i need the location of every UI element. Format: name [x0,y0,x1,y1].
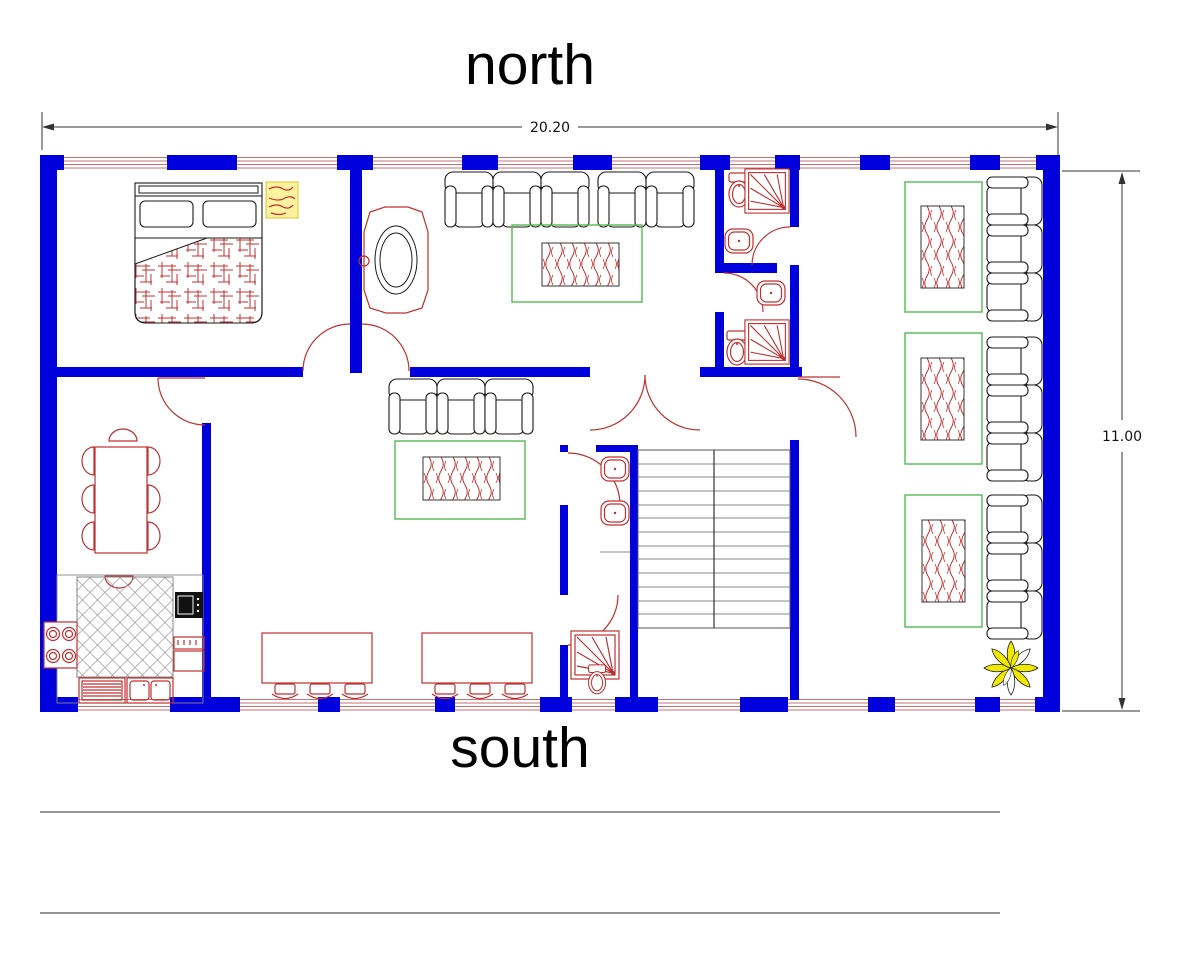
armchair [987,273,1042,321]
salon-table-3 [922,520,965,602]
side-table-oval [359,207,428,313]
dining-area [82,429,160,588]
oven [174,637,204,671]
salon-wall-c [790,440,799,700]
armchair [437,379,485,434]
bedroom-south-wall [57,367,303,377]
stair-west-wall [630,445,638,700]
dining-chair [148,522,160,550]
toilet [727,331,747,365]
kitchen [44,575,204,703]
dining-chair [148,447,160,475]
bedroom-door-arc [303,324,350,371]
dining-chair [82,485,94,513]
wc-room [571,457,630,694]
desk-2 [422,633,532,683]
height-dimension-label: 11.00 [1102,429,1142,445]
lower-bathroom [727,281,789,365]
stove [44,622,77,668]
armchair [646,172,694,227]
family-coffee-table [423,457,500,500]
wc-wall-a [560,445,568,452]
bedroom [135,182,298,323]
plant [984,641,1038,695]
upper-bathroom [725,169,789,253]
armchair [987,495,1042,543]
north-label: north [465,33,595,97]
armchair [987,337,1042,385]
salon-wall-a [790,170,799,227]
upper-bath-door-arc [752,227,790,265]
bedside-rug [266,182,298,218]
sink [601,501,629,525]
armchair [987,225,1042,273]
dining-chair [82,447,94,475]
double-bed [135,183,262,323]
sink [601,457,629,481]
floor-plan-drawing: north south 20.20 11.00 [0,0,1200,960]
armchair [598,172,646,227]
floor-plan-image: north south 20.20 11.00 [0,0,1200,960]
living-south-wall [410,367,590,377]
dining-door-arc [158,378,205,425]
width-dimension-label: 20.20 [530,120,570,136]
stool [467,684,493,699]
wc-wall-b [560,505,568,595]
salon-door-arc [798,377,856,437]
dining-chair [109,429,137,441]
family-room [262,379,533,699]
salon-table-1 [921,206,964,288]
south-label: south [450,716,589,780]
armchair [389,379,437,434]
stool [502,684,528,699]
desk-1 [262,633,372,683]
kitchen-counter-hatch [77,577,173,677]
wc-wall-c [560,645,568,700]
stool [307,684,333,699]
armchair [987,177,1042,225]
armchair [493,172,541,227]
staircase [638,450,790,628]
armchair [987,591,1042,639]
armchair [987,433,1042,481]
dining-table [95,447,147,553]
stool [342,684,368,699]
stool [272,684,298,699]
living-room [359,172,694,313]
entry-double-door-right [645,375,700,430]
dining-chair [148,485,160,513]
sink [757,281,785,305]
bath-divider-wall [715,263,777,273]
entry-double-door-left [590,375,645,430]
salon [905,177,1042,695]
armchair [485,379,533,434]
sink [725,229,753,253]
dining-chair [82,522,94,550]
bedroom-divider-wall [350,170,362,373]
shower [745,169,789,213]
armchair [445,172,493,227]
salon-table-2 [921,358,964,440]
armchair [541,172,589,227]
shower [745,320,789,364]
living-door-arc [362,324,409,371]
salon-wall-b [790,265,799,375]
bath-west-wall-upper [715,170,724,273]
east-wall [1043,155,1060,712]
microwave [175,592,203,618]
bath-west-wall-lower [715,312,724,373]
living-coffee-table [542,243,619,286]
armchair [987,543,1042,591]
armchair [987,385,1042,433]
vertical-dimension: 11.00 [1062,171,1142,711]
horizontal-dimension: 20.20 [42,112,1058,155]
stool [432,684,458,699]
toilet [589,665,606,694]
